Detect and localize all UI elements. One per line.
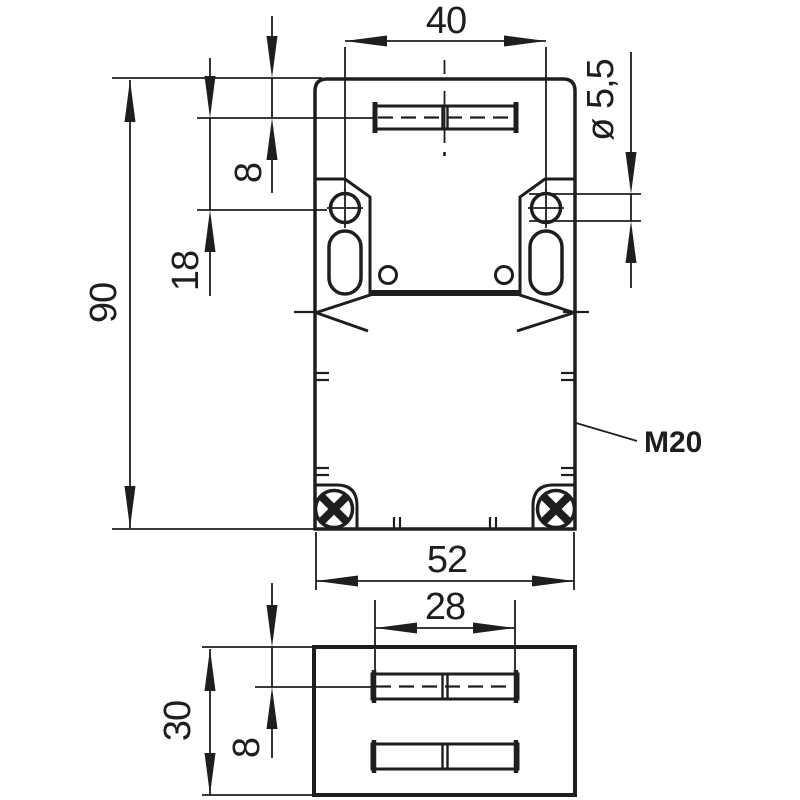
mounting-hole-left [327,189,363,228]
arrowhead [626,152,637,194]
slotted-hole-left [329,231,361,294]
chamfer-left [317,313,368,331]
dim-40: 40 [345,0,546,191]
dim-label-8: 8 [228,163,270,183]
pilot-hole-left [380,267,397,284]
leader-line [576,423,637,441]
dim-label-8-side: 8 [226,738,268,758]
thread-label: M20 [644,426,702,459]
dim-label-18: 18 [165,251,207,291]
side-slot-lower [372,740,518,773]
dim-label-52: 52 [427,539,467,581]
dim-label-40: 40 [426,0,466,42]
pilot-hole-right [496,267,513,284]
arrowhead [375,623,417,634]
cover-screw-right [538,491,575,528]
mounting-slot [375,102,516,133]
dim-label-hole-diameter: ø 5,5 [580,59,622,141]
housing-outline [315,79,575,529]
bottom-notches [394,517,496,529]
side-view [314,647,575,795]
dim-8-top: 8 [112,16,376,193]
arrowhead [316,576,358,587]
arrowhead [125,80,136,122]
dim-28: 28 [375,586,515,672]
cover-screw-left [316,491,353,528]
edge-ticks [316,373,574,475]
dim-label-28: 28 [425,586,465,628]
side-slot-lower-body [372,744,518,769]
arrowhead [205,210,216,252]
arrowhead [267,687,278,729]
chamfer-right [517,313,573,331]
arrowhead [626,221,637,263]
dimension-drawing-page: 40 8 18 90 ø 5,5 [0,0,800,800]
arrowhead [205,649,216,691]
dim-8-side: 8 [226,583,374,758]
arrowhead [532,576,574,587]
side-housing-outline [314,647,575,795]
dim-30: 30 [157,647,314,795]
arrowhead [504,36,546,47]
dim-52: 52 [316,532,574,590]
dim-label-90: 90 [83,283,125,323]
arrowhead [267,36,278,78]
arrowhead [473,623,515,634]
thread-callout: M20 [576,423,702,459]
dim-label-30: 30 [157,701,199,741]
arrowhead [205,753,216,795]
slotted-hole-right [530,231,562,294]
dimension-drawing: 40 8 18 90 ø 5,5 [0,0,800,800]
arrowhead [345,36,387,47]
dim-90: 90 [83,80,314,529]
arrowhead [267,118,278,160]
side-slot-upper [372,670,518,703]
front-view [294,60,589,529]
arrowhead [205,76,216,118]
arrowhead [125,486,136,528]
arrowhead [267,605,278,647]
